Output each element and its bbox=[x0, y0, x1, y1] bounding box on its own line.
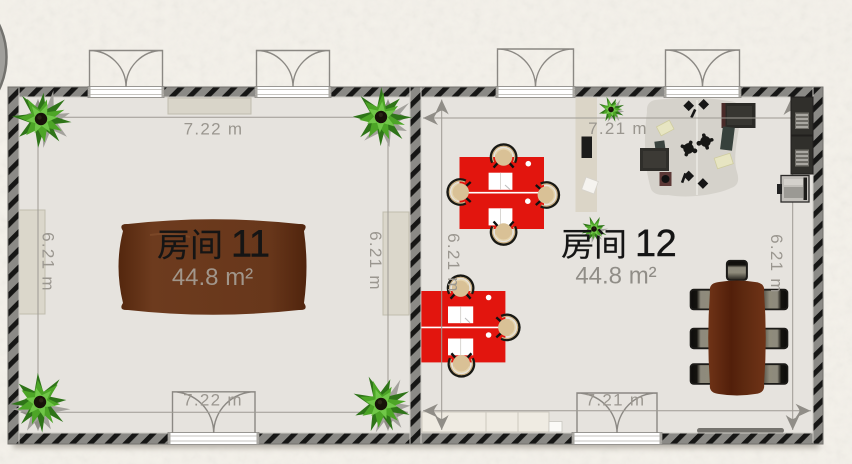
svg-text:7.22 m: 7.22 m bbox=[183, 391, 243, 410]
svg-text:6.21 m: 6.21 m bbox=[767, 234, 786, 294]
svg-text:7.21 m: 7.21 m bbox=[586, 391, 646, 410]
svg-text:7.21 m: 7.21 m bbox=[588, 119, 648, 138]
svg-text:6.21 m: 6.21 m bbox=[366, 231, 385, 291]
svg-text:44.8 m²: 44.8 m² bbox=[172, 264, 253, 291]
svg-text:44.8 m²: 44.8 m² bbox=[575, 263, 656, 290]
svg-text:12: 12 bbox=[635, 223, 676, 265]
svg-text:11: 11 bbox=[231, 224, 269, 266]
svg-text:6.21 m: 6.21 m bbox=[444, 233, 463, 293]
svg-text:6.21 m: 6.21 m bbox=[39, 232, 58, 292]
svg-text:7.22 m: 7.22 m bbox=[184, 120, 244, 139]
